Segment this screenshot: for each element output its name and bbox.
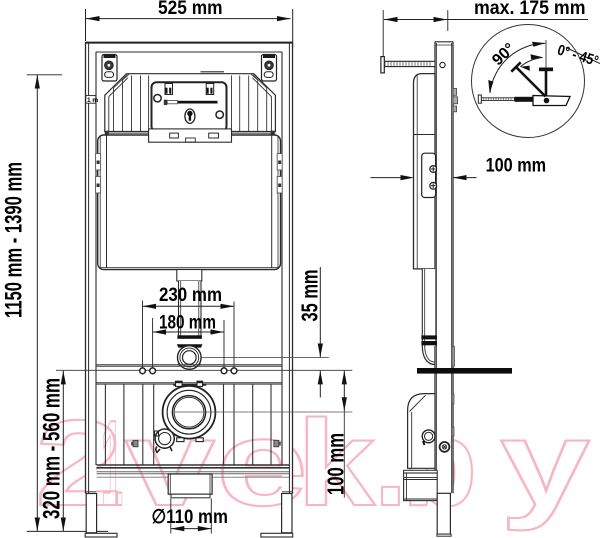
svg-text:e: e xyxy=(216,395,308,531)
svg-text:1150 mm - 1390 mm: 1150 mm - 1390 mm xyxy=(1,162,28,318)
svg-text:1 m: 1 m xyxy=(87,97,98,104)
svg-text:max. 175 mm: max. 175 mm xyxy=(474,0,586,19)
svg-text:y: y xyxy=(500,395,590,531)
svg-text:180 mm: 180 mm xyxy=(159,312,216,334)
svg-text:90°: 90° xyxy=(489,40,518,69)
svg-text:∅110 mm: ∅110 mm xyxy=(152,506,229,528)
svg-text:525 mm: 525 mm xyxy=(158,0,223,19)
svg-text:1: 1 xyxy=(101,395,123,531)
svg-text:0° - 45°: 0° - 45° xyxy=(555,42,600,71)
svg-text:35 mm: 35 mm xyxy=(297,270,323,322)
svg-text:320 mm - 560 mm: 320 mm - 560 mm xyxy=(39,378,66,519)
svg-text:230 mm: 230 mm xyxy=(159,284,222,306)
svg-text:100 mm: 100 mm xyxy=(486,155,546,176)
